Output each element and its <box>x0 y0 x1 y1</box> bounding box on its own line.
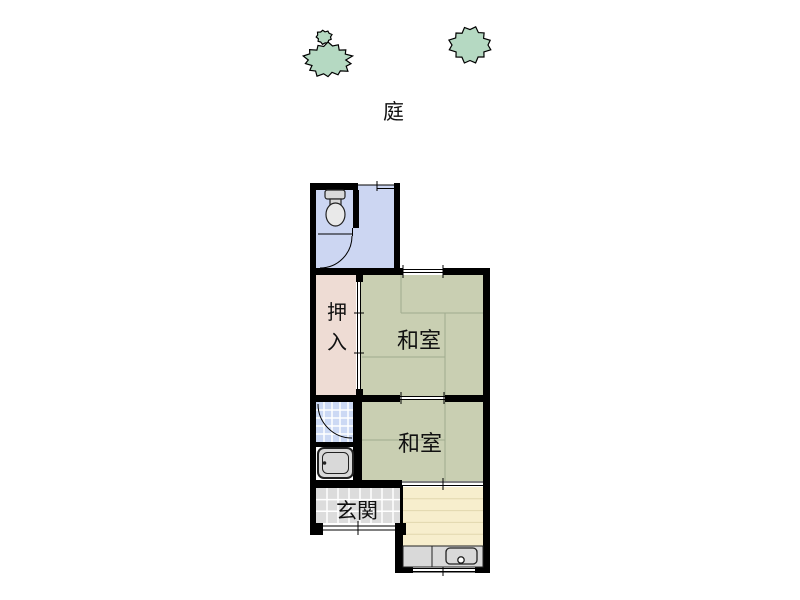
bush-icon <box>449 27 491 63</box>
kitchen-counter <box>403 546 483 567</box>
bush-icon <box>303 42 352 77</box>
kitchen-floor <box>403 487 483 546</box>
floor-plan: 庭 押入 和室 和室 玄関 <box>0 0 800 600</box>
bush-icon <box>316 30 332 44</box>
garden-label: 庭 <box>383 96 404 126</box>
tatami-room-upper-label: 和室 <box>397 323 441 355</box>
bathtub-icon <box>318 448 353 478</box>
entrance-label: 玄関 <box>336 495 378 525</box>
floor-plan-drawing <box>0 0 800 600</box>
garden-trees <box>303 27 491 77</box>
tatami-room-lower-label: 和室 <box>398 426 442 458</box>
toilet-icon <box>325 190 345 226</box>
closet-label: 押入 <box>326 298 348 358</box>
